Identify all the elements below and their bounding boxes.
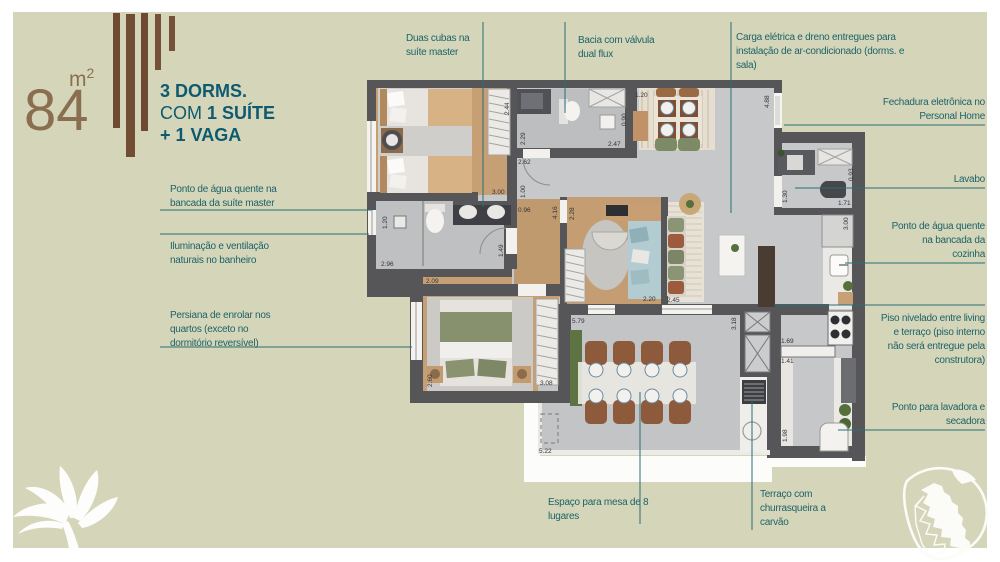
svg-text:carvão: carvão <box>760 517 789 528</box>
svg-text:2.60: 2.60 <box>427 374 434 387</box>
svg-text:não será entregue pela: não será entregue pela <box>888 341 986 352</box>
svg-text:2.45: 2.45 <box>667 297 680 304</box>
svg-text:COM 1 SUÍTE: COM 1 SUÍTE <box>160 102 275 123</box>
svg-text:4.16: 4.16 <box>552 206 559 219</box>
svg-text:3.18: 3.18 <box>731 317 738 330</box>
svg-text:3 DORMS.: 3 DORMS. <box>160 81 247 101</box>
svg-text:secadora: secadora <box>946 416 986 427</box>
svg-text:naturais no banheiro: naturais no banheiro <box>170 255 257 266</box>
svg-text:3.08: 3.08 <box>540 380 553 387</box>
svg-text:3.00: 3.00 <box>843 217 850 230</box>
svg-text:Ponto para lavadora e: Ponto para lavadora e <box>892 402 986 413</box>
svg-text:Lavabo: Lavabo <box>954 174 986 185</box>
svg-text:na bancada da: na bancada da <box>922 235 986 246</box>
svg-text:sala): sala) <box>736 60 756 71</box>
svg-text:Personal Home: Personal Home <box>919 111 985 122</box>
svg-text:2.20: 2.20 <box>643 296 656 303</box>
svg-text:Persiana de enrolar nos: Persiana de enrolar nos <box>170 310 271 321</box>
svg-text:4.88: 4.88 <box>764 95 771 108</box>
svg-text:1.20: 1.20 <box>382 216 389 229</box>
svg-text:construtora): construtora) <box>935 355 985 366</box>
svg-text:Bacia com válvula: Bacia com válvula <box>578 35 655 46</box>
svg-text:+ 1 VAGA: + 1 VAGA <box>160 125 241 145</box>
svg-text:bancada da suíte master: bancada da suíte master <box>170 198 275 209</box>
svg-text:cozinha: cozinha <box>952 249 985 260</box>
svg-text:lugares: lugares <box>548 511 579 522</box>
svg-text:0.93: 0.93 <box>848 168 855 181</box>
svg-text:Iluminação e ventilação: Iluminação e ventilação <box>170 241 269 252</box>
svg-text:suíte master: suíte master <box>406 47 459 58</box>
svg-text:0.96: 0.96 <box>518 207 531 214</box>
svg-text:Espaço para mesa de 8: Espaço para mesa de 8 <box>548 497 649 508</box>
svg-text:1.30: 1.30 <box>782 190 789 203</box>
svg-text:0.90: 0.90 <box>621 113 628 126</box>
svg-text:1.98: 1.98 <box>782 429 789 442</box>
svg-text:e terraço (piso interno: e terraço (piso interno <box>893 327 985 338</box>
svg-text:1.71: 1.71 <box>838 200 851 207</box>
svg-text:2.47: 2.47 <box>608 141 621 148</box>
svg-text:Piso nivelado entre living: Piso nivelado entre living <box>881 313 985 324</box>
svg-text:Duas cubas na: Duas cubas na <box>406 33 470 44</box>
svg-text:Fechadura eletrônica no: Fechadura eletrônica no <box>883 97 986 108</box>
svg-text:1.69: 1.69 <box>781 338 794 345</box>
svg-text:2.96: 2.96 <box>381 261 394 268</box>
svg-text:5.22: 5.22 <box>539 448 552 455</box>
svg-text:2.44: 2.44 <box>504 102 511 115</box>
svg-text:Carga elétrica e dreno entregu: Carga elétrica e dreno entregues para <box>736 32 896 43</box>
svg-text:1.20: 1.20 <box>635 92 648 99</box>
svg-text:quartos (exceto no: quartos (exceto no <box>170 324 249 335</box>
svg-text:1.41: 1.41 <box>781 358 794 365</box>
svg-text:2.29: 2.29 <box>520 132 527 145</box>
svg-text:1.00: 1.00 <box>520 185 527 198</box>
svg-text:dual flux: dual flux <box>578 49 613 60</box>
svg-text:3.00: 3.00 <box>492 189 505 196</box>
svg-text:instalação de ar-condicionado: instalação de ar-condicionado (dorms. e <box>736 46 905 57</box>
svg-text:1.49: 1.49 <box>498 244 505 257</box>
svg-text:churrasqueira a: churrasqueira a <box>760 503 826 514</box>
svg-text:Ponto de água quente na: Ponto de água quente na <box>170 184 277 195</box>
svg-text:5.79: 5.79 <box>572 318 585 325</box>
svg-text:Terraço com: Terraço com <box>760 489 812 500</box>
svg-text:Ponto de água quente: Ponto de água quente <box>892 221 986 232</box>
svg-text:2.28: 2.28 <box>569 207 576 220</box>
svg-text:2.09: 2.09 <box>426 278 439 285</box>
svg-text:2.62: 2.62 <box>518 159 531 166</box>
